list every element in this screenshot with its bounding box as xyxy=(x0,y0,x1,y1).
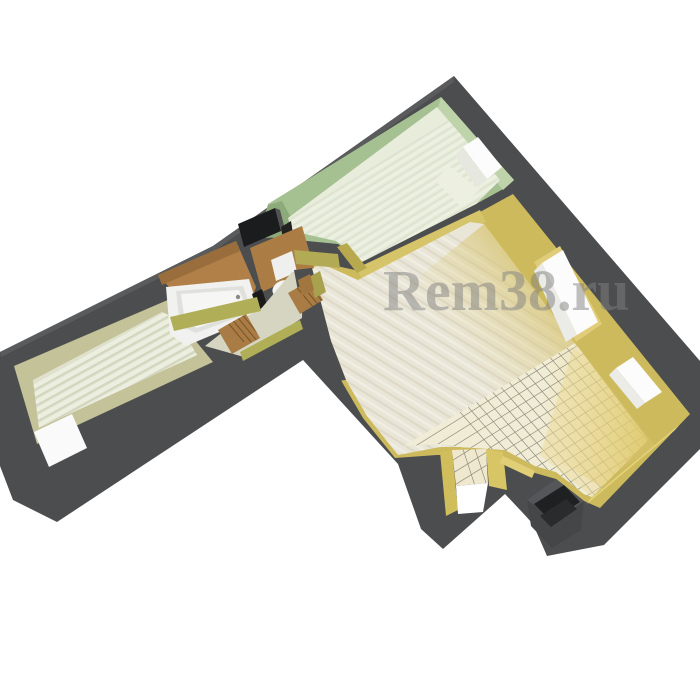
svg-text:Rem38.ru: Rem38.ru xyxy=(383,258,629,323)
